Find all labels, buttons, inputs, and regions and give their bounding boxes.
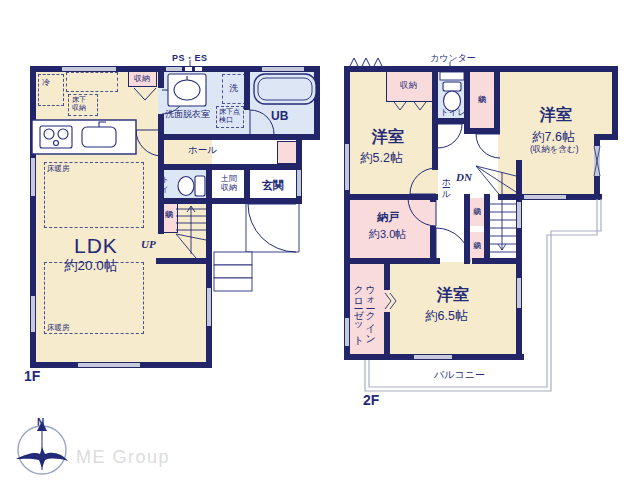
wall bbox=[344, 258, 440, 264]
wall bbox=[158, 66, 164, 88]
window-mark bbox=[524, 195, 566, 199]
ub-label: UB bbox=[271, 110, 288, 124]
bedroom76-note: (収納を含む) bbox=[530, 145, 579, 155]
dn-label: DN bbox=[456, 171, 472, 184]
washer-label: 洗 bbox=[229, 83, 238, 93]
storeroom-area: 約3.0帖 bbox=[369, 228, 406, 241]
floor1-label: 1F bbox=[24, 368, 40, 384]
window-mark bbox=[517, 202, 521, 228]
window-mark bbox=[414, 355, 452, 359]
bedroom52-label: 洋室 bbox=[372, 128, 404, 146]
storage-top-label: 収納 bbox=[134, 74, 150, 83]
hall-2f-label: ホール bbox=[441, 172, 451, 196]
floor-heating-label: 床暖房 bbox=[47, 324, 70, 333]
wall bbox=[244, 169, 250, 199]
pantry-space bbox=[66, 72, 118, 92]
floor2-label: 2F bbox=[363, 392, 379, 408]
wall bbox=[430, 226, 436, 264]
window-mark bbox=[78, 363, 140, 367]
up-label: UP bbox=[141, 238, 156, 251]
window-mark bbox=[262, 67, 304, 71]
toilet-1f-label: トイレ bbox=[160, 171, 169, 200]
wall bbox=[436, 118, 468, 124]
wall bbox=[464, 128, 500, 134]
stair-storage-b-label: 収納 bbox=[472, 235, 481, 237]
wall bbox=[612, 66, 618, 140]
wall bbox=[158, 164, 302, 170]
wall bbox=[156, 258, 212, 264]
compass-icon bbox=[16, 421, 68, 474]
window-mark bbox=[62, 67, 116, 71]
wall bbox=[206, 164, 212, 368]
stair-storage-1f-label: 収納 bbox=[164, 203, 173, 205]
window-mark bbox=[345, 144, 349, 190]
bedroom76-area: 約7.6帖 bbox=[532, 130, 574, 144]
underfloor-hatch-label: 床下点検口 bbox=[219, 108, 243, 124]
storage52-label: 収納 bbox=[400, 81, 417, 91]
bedroom76-label: 洋室 bbox=[540, 106, 572, 124]
storage76-label: 収納 bbox=[477, 88, 486, 90]
brand-logo-text: ME Group bbox=[76, 447, 170, 468]
wall bbox=[494, 66, 500, 134]
entrance-porch bbox=[214, 204, 299, 291]
entrance-label: 玄関 bbox=[262, 179, 284, 192]
ldk-label: LDK bbox=[74, 234, 118, 258]
window-mark bbox=[166, 67, 182, 71]
wall bbox=[314, 66, 320, 140]
bedroom65-label: 洋室 bbox=[437, 286, 469, 304]
floor-heating-label: 床暖房 bbox=[47, 165, 70, 174]
wall bbox=[344, 66, 618, 72]
underfloor-storage-label: 床下収納 bbox=[72, 96, 88, 112]
wall bbox=[244, 66, 250, 110]
window-mark bbox=[31, 296, 35, 332]
wall bbox=[384, 312, 390, 360]
wall bbox=[344, 66, 350, 360]
wall bbox=[384, 264, 390, 290]
bedroom65-area: 約6.5帖 bbox=[425, 309, 467, 323]
wall bbox=[430, 194, 436, 202]
ps-es-label: PS・ES bbox=[172, 53, 208, 63]
storeroom-label: 納戸 bbox=[377, 211, 399, 224]
window-mark bbox=[517, 278, 521, 308]
compass-north-label: N bbox=[37, 417, 44, 429]
floorplan-page: { "floor1": { "label": "1F", "annotation… bbox=[0, 0, 640, 480]
ldk-area-label: 約20.0帖 bbox=[64, 258, 117, 274]
window-mark bbox=[345, 318, 349, 346]
washroom-label: 洗面脱衣室 bbox=[165, 109, 210, 119]
ps-shaft-mark bbox=[184, 66, 193, 72]
hall-storage-box bbox=[277, 141, 297, 164]
hall-1f-label: ホール bbox=[188, 145, 217, 156]
wall bbox=[472, 258, 522, 264]
balcony-label: バルコニー bbox=[434, 369, 485, 381]
room-ub bbox=[248, 66, 320, 138]
counter-label: カウンター bbox=[430, 53, 476, 63]
ps-shaft-mark bbox=[194, 66, 203, 72]
wic-label: ウォークインクローゼット bbox=[352, 278, 376, 348]
bird-silhouette bbox=[16, 447, 68, 468]
fridge-label: 冷 bbox=[42, 78, 50, 87]
window-mark bbox=[207, 288, 211, 326]
room-bedroom76 bbox=[498, 66, 618, 140]
wall bbox=[158, 134, 320, 140]
wall bbox=[464, 194, 470, 264]
bedroom52-area: 約5.2帖 bbox=[360, 151, 402, 165]
window-mark bbox=[297, 170, 301, 196]
doma-storage-label: 土間収納 bbox=[221, 174, 239, 192]
window-mark bbox=[31, 158, 35, 196]
wall bbox=[344, 194, 438, 200]
toilet-2f-label: トイレ bbox=[440, 108, 466, 118]
fix-window-mark bbox=[594, 146, 600, 176]
stair-storage-a-label: 収納 bbox=[472, 201, 481, 203]
wall bbox=[484, 194, 490, 264]
wall bbox=[158, 198, 302, 204]
